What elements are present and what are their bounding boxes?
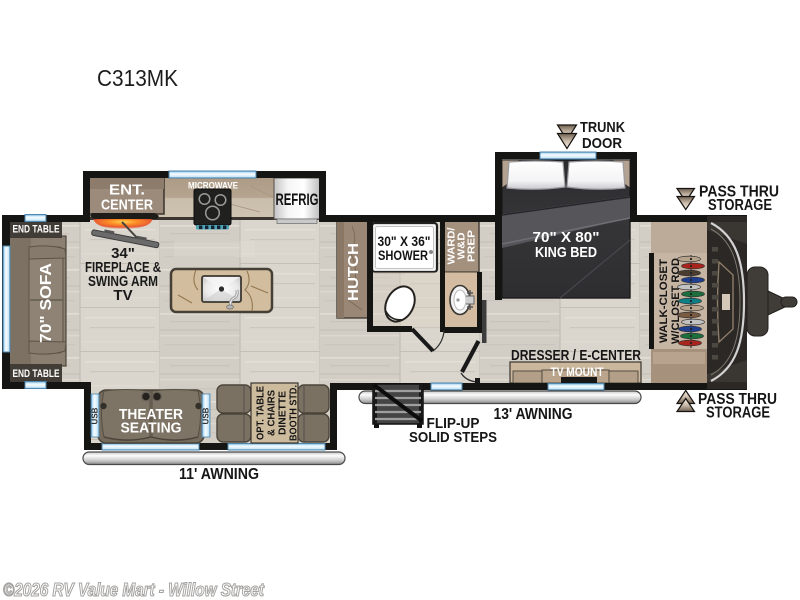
svg-text:SEATING: SEATING	[121, 421, 182, 437]
svg-text:USB: USB	[202, 407, 211, 424]
svg-text:30" X 36": 30" X 36"	[378, 234, 431, 249]
svg-text:C313MK: C313MK	[97, 65, 179, 91]
svg-text:DRESSER / E-CENTER: DRESSER / E-CENTER	[511, 347, 641, 364]
svg-text:WALK-CLOSET: WALK-CLOSET	[658, 259, 670, 343]
svg-text:HUTCH: HUTCH	[346, 243, 362, 301]
svg-text:©2026 RV Value Mart - Willow S: ©2026 RV Value Mart - Willow Street	[3, 580, 265, 600]
svg-text:PREP: PREP	[466, 230, 478, 262]
svg-text:11' AWNING: 11' AWNING	[179, 466, 259, 483]
svg-text:70" X 80": 70" X 80"	[533, 230, 600, 246]
svg-text:DOOR: DOOR	[582, 135, 622, 152]
svg-text:TV: TV	[113, 287, 132, 304]
svg-text:REFRIG: REFRIG	[276, 190, 319, 209]
svg-text:KING BED: KING BED	[535, 245, 597, 261]
svg-text:CENTER: CENTER	[101, 197, 153, 214]
svg-text:USB: USB	[91, 407, 100, 424]
svg-text:STORAGE: STORAGE	[706, 405, 770, 422]
svg-text:13' AWNING: 13' AWNING	[494, 406, 573, 423]
svg-text:END TABLE: END TABLE	[13, 224, 60, 236]
svg-text:70" SOFA: 70" SOFA	[38, 263, 55, 343]
svg-text:STORAGE: STORAGE	[708, 197, 772, 214]
svg-text:SHOWER: SHOWER	[378, 248, 428, 263]
svg-text:SOLID STEPS: SOLID STEPS	[409, 429, 497, 446]
svg-text:TV MOUNT: TV MOUNT	[551, 367, 604, 379]
svg-text:END TABLE: END TABLE	[13, 368, 60, 380]
svg-text:TRUNK: TRUNK	[580, 119, 625, 136]
